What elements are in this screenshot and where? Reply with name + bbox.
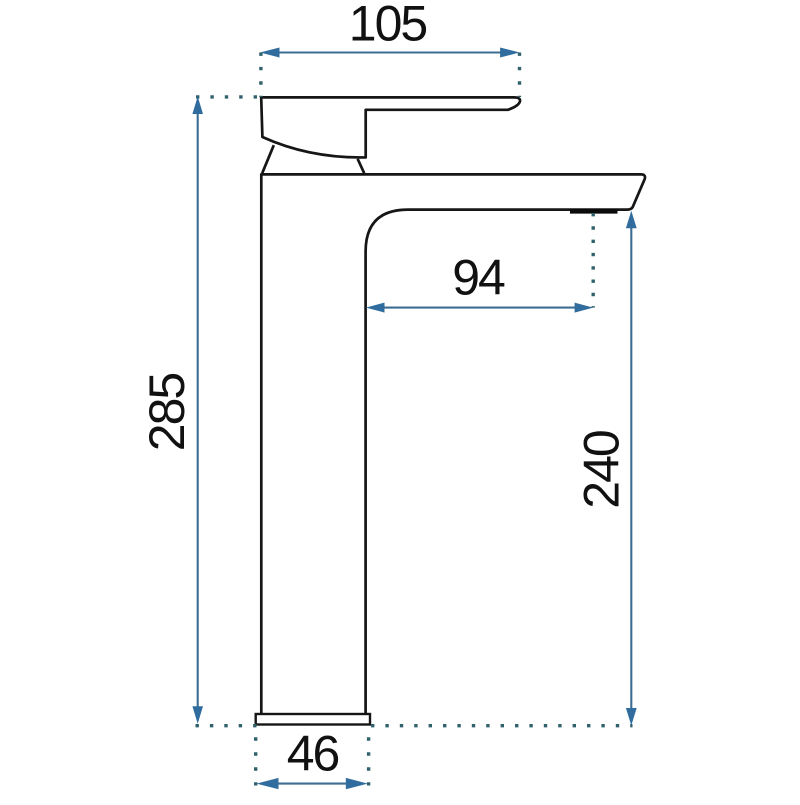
svg-text:240: 240 <box>574 431 630 509</box>
svg-text:105: 105 <box>349 0 427 52</box>
svg-text:94: 94 <box>452 250 505 306</box>
svg-text:46: 46 <box>287 726 339 782</box>
svg-text:285: 285 <box>139 374 195 452</box>
